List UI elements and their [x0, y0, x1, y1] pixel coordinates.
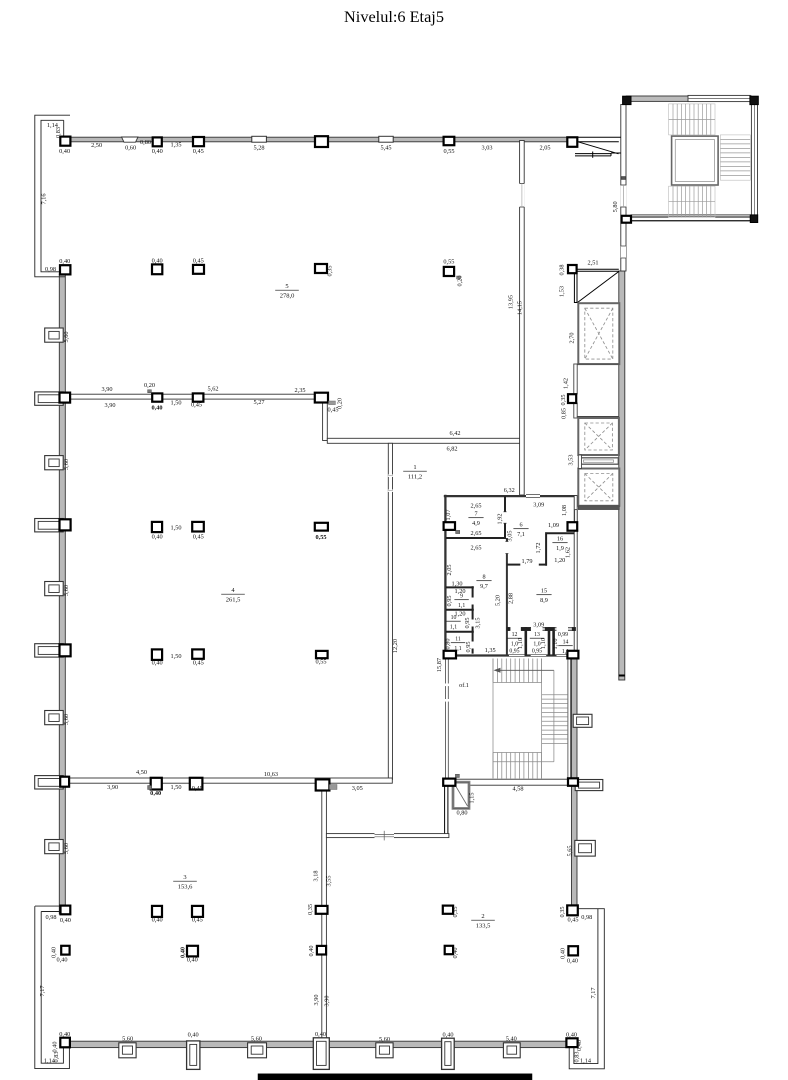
svg-text:1,1: 1,1: [562, 649, 569, 655]
svg-text:3,05: 3,05: [352, 785, 363, 792]
svg-text:2,35: 2,35: [294, 387, 305, 394]
svg-text:3,90: 3,90: [101, 386, 112, 393]
svg-text:1,20: 1,20: [454, 588, 465, 595]
svg-text:4,50: 4,50: [136, 769, 147, 776]
svg-text:3,09: 3,09: [533, 501, 544, 508]
svg-text:Nivelul:6 Etaj5: Nivelul:6 Etaj5: [344, 7, 444, 26]
svg-text:278,0: 278,0: [280, 293, 295, 300]
svg-text:12: 12: [512, 632, 518, 638]
svg-text:0,40: 0,40: [566, 1032, 577, 1039]
svg-text:1,53: 1,53: [559, 286, 566, 297]
svg-text:1,42: 1,42: [563, 378, 570, 389]
svg-text:1,50: 1,50: [170, 525, 181, 532]
svg-text:7,1: 7,1: [517, 531, 525, 538]
svg-text:5,62: 5,62: [207, 386, 218, 393]
svg-text:1,35: 1,35: [485, 647, 496, 654]
svg-text:8: 8: [482, 574, 485, 581]
svg-text:0,20: 0,20: [457, 275, 464, 286]
svg-text:0,40: 0,40: [59, 258, 70, 265]
svg-text:1,08: 1,08: [561, 505, 568, 516]
svg-text:15,87: 15,87: [436, 658, 443, 672]
svg-text:1,10: 1,10: [540, 638, 547, 649]
svg-text:1,1: 1,1: [458, 603, 465, 609]
svg-text:11: 11: [455, 637, 461, 643]
svg-text:0,45: 0,45: [193, 148, 204, 155]
svg-text:111,2: 111,2: [408, 474, 422, 481]
svg-text:1,35: 1,35: [170, 142, 181, 149]
svg-text:16: 16: [557, 536, 563, 543]
svg-text:14: 14: [563, 640, 569, 646]
svg-text:0,98: 0,98: [45, 914, 56, 921]
svg-text:5,65: 5,65: [567, 845, 574, 856]
svg-text:3,03: 3,03: [481, 145, 492, 152]
svg-text:5,27: 5,27: [253, 399, 264, 406]
svg-text:3,18: 3,18: [313, 870, 320, 881]
svg-text:1,14: 1,14: [580, 1058, 592, 1065]
svg-text:0,45: 0,45: [567, 917, 578, 924]
svg-text:8,9: 8,9: [540, 597, 548, 604]
svg-text:0,20: 0,20: [337, 398, 344, 409]
svg-text:1,20: 1,20: [454, 611, 465, 618]
svg-text:6,82: 6,82: [446, 446, 457, 453]
svg-text:0,40: 0,40: [59, 148, 70, 155]
svg-text:0,45: 0,45: [192, 785, 203, 792]
svg-text:4,9: 4,9: [472, 520, 480, 527]
svg-text:4: 4: [231, 587, 235, 594]
svg-text:14,15: 14,15: [517, 301, 524, 315]
svg-text:10,63: 10,63: [264, 771, 278, 778]
svg-text:1,50: 1,50: [170, 400, 181, 407]
svg-text:0,45: 0,45: [192, 917, 203, 924]
svg-text:2,65: 2,65: [470, 503, 481, 510]
svg-text:1: 1: [413, 464, 416, 471]
svg-text:2,65: 2,65: [470, 545, 481, 552]
svg-text:5: 5: [285, 283, 288, 290]
svg-text:0,40: 0,40: [150, 790, 161, 797]
svg-text:1,50: 1,50: [170, 653, 181, 660]
svg-text:0,40: 0,40: [152, 258, 163, 265]
svg-text:0,35: 0,35: [559, 906, 566, 917]
svg-text:3,90: 3,90: [324, 995, 331, 1006]
svg-text:0,40: 0,40: [152, 534, 163, 541]
svg-text:3,55: 3,55: [326, 875, 333, 886]
svg-text:1,79: 1,79: [521, 558, 532, 565]
svg-text:1,1: 1,1: [454, 646, 461, 652]
svg-text:0,55: 0,55: [443, 148, 454, 155]
svg-text:0,40: 0,40: [152, 917, 163, 924]
svg-text:0,80: 0,80: [456, 810, 467, 817]
svg-text:1,15: 1,15: [468, 792, 475, 803]
svg-text:1,14: 1,14: [44, 1058, 56, 1065]
svg-text:1,07: 1,07: [445, 509, 452, 520]
svg-text:1,09: 1,09: [548, 522, 559, 529]
svg-text:1,1: 1,1: [450, 625, 457, 631]
svg-text:1,50: 1,50: [170, 784, 181, 791]
svg-text:0,40: 0,40: [452, 947, 459, 958]
svg-text:3,90: 3,90: [104, 402, 115, 409]
svg-text:5,60: 5,60: [63, 843, 70, 854]
svg-text:0,40: 0,40: [152, 148, 163, 155]
svg-text:4,58: 4,58: [512, 785, 523, 792]
svg-text:0,35: 0,35: [452, 906, 459, 917]
svg-text:0,55: 0,55: [315, 534, 326, 541]
svg-text:5,40: 5,40: [506, 1036, 517, 1043]
svg-text:5,80: 5,80: [612, 201, 619, 212]
svg-text:153,6: 153,6: [178, 884, 193, 891]
svg-text:2,65: 2,65: [470, 530, 481, 537]
svg-text:5,60: 5,60: [251, 1036, 262, 1043]
svg-text:3,09: 3,09: [533, 621, 544, 628]
svg-text:5,60: 5,60: [63, 585, 70, 596]
svg-text:0,45: 0,45: [193, 258, 204, 265]
svg-text:3: 3: [183, 874, 186, 881]
svg-text:12,20: 12,20: [392, 639, 399, 653]
svg-text:0,40: 0,40: [60, 917, 71, 924]
svg-text:0,98: 0,98: [45, 266, 56, 273]
svg-text:1,9: 1,9: [556, 545, 564, 552]
svg-text:7,17: 7,17: [39, 985, 46, 996]
svg-text:0,20: 0,20: [144, 382, 155, 389]
svg-text:0,83: 0,83: [55, 127, 62, 138]
svg-text:1,30: 1,30: [451, 581, 462, 588]
svg-text:0,40: 0,40: [560, 948, 567, 959]
svg-text:0,60: 0,60: [125, 145, 136, 152]
svg-text:6: 6: [519, 522, 522, 529]
svg-text:2,88: 2,88: [507, 593, 514, 604]
svg-text:0,35: 0,35: [307, 904, 314, 915]
svg-text:5,60: 5,60: [63, 331, 70, 342]
svg-text:2,50: 2,50: [91, 142, 102, 149]
svg-text:15: 15: [541, 588, 547, 595]
svg-text:0,55: 0,55: [315, 659, 326, 666]
svg-text:7: 7: [474, 511, 477, 518]
svg-text:2,70: 2,70: [569, 332, 576, 343]
svg-text:5,45: 5,45: [380, 145, 391, 152]
svg-text:5,28: 5,28: [253, 145, 264, 152]
svg-text:0,40: 0,40: [151, 405, 162, 412]
svg-text:6,42: 6,42: [449, 430, 460, 437]
svg-text:2,51: 2,51: [587, 260, 598, 267]
svg-text:0,40: 0,40: [315, 1031, 326, 1038]
svg-text:0,55: 0,55: [443, 259, 454, 266]
svg-text:1,72: 1,72: [535, 542, 542, 553]
svg-text:3,90: 3,90: [107, 784, 118, 791]
svg-text:0,38: 0,38: [559, 264, 566, 275]
svg-text:0,35: 0,35: [560, 394, 567, 405]
svg-text:0,98: 0,98: [581, 914, 592, 921]
svg-text:7,16: 7,16: [41, 193, 48, 204]
svg-text:2,05: 2,05: [446, 564, 453, 575]
svg-text:0,45: 0,45: [191, 402, 202, 409]
svg-text:13: 13: [534, 632, 540, 638]
svg-text:3,05: 3,05: [507, 530, 514, 541]
svg-text:1,20: 1,20: [554, 557, 565, 564]
svg-text:3,90: 3,90: [313, 994, 320, 1005]
svg-text:0,95: 0,95: [446, 595, 453, 606]
svg-text:0,40: 0,40: [52, 1041, 59, 1052]
svg-text:0,40: 0,40: [56, 956, 67, 963]
svg-text:1,92: 1,92: [497, 513, 504, 524]
svg-text:13,95: 13,95: [508, 295, 515, 309]
svg-text:7,17: 7,17: [590, 987, 597, 998]
svg-text:3,53: 3,53: [568, 454, 575, 465]
svg-text:5,60: 5,60: [63, 714, 70, 725]
svg-text:2: 2: [481, 913, 484, 920]
svg-text:0,40: 0,40: [59, 1031, 70, 1038]
svg-text:6,32: 6,32: [504, 487, 515, 494]
svg-text:133,5: 133,5: [476, 923, 491, 930]
svg-text:0,40: 0,40: [576, 1040, 583, 1051]
svg-text:0,40: 0,40: [567, 958, 578, 965]
svg-text:5,60: 5,60: [379, 1036, 390, 1043]
svg-text:0,99: 0,99: [558, 632, 568, 638]
svg-text:0,80: 0,80: [444, 638, 451, 649]
svg-text:0,95: 0,95: [464, 617, 471, 628]
svg-text:2,05: 2,05: [539, 145, 550, 152]
svg-text:of.1: of.1: [459, 682, 469, 689]
svg-text:0,95: 0,95: [465, 641, 472, 652]
svg-text:0,40: 0,40: [179, 947, 186, 958]
svg-text:0,80: 0,80: [140, 139, 151, 146]
svg-text:5,60: 5,60: [122, 1036, 133, 1043]
svg-text:9,7: 9,7: [480, 583, 488, 590]
svg-text:1,10: 1,10: [552, 638, 559, 649]
svg-text:0,40: 0,40: [152, 660, 163, 667]
svg-text:5,20: 5,20: [495, 595, 502, 606]
svg-text:0,45: 0,45: [193, 660, 204, 667]
svg-text:0,40: 0,40: [187, 956, 198, 963]
svg-text:1,62: 1,62: [565, 547, 572, 558]
svg-text:0,40: 0,40: [442, 1032, 453, 1039]
svg-text:261,5: 261,5: [226, 597, 241, 604]
svg-text:0,35: 0,35: [327, 265, 334, 276]
svg-text:0,85: 0,85: [561, 408, 568, 419]
svg-text:0,45: 0,45: [193, 534, 204, 541]
svg-text:0,40: 0,40: [308, 945, 315, 956]
svg-text:1,10: 1,10: [517, 638, 524, 649]
svg-text:0,40: 0,40: [188, 1032, 199, 1039]
svg-text:3,15: 3,15: [474, 617, 481, 628]
svg-text:5,60: 5,60: [63, 459, 70, 470]
